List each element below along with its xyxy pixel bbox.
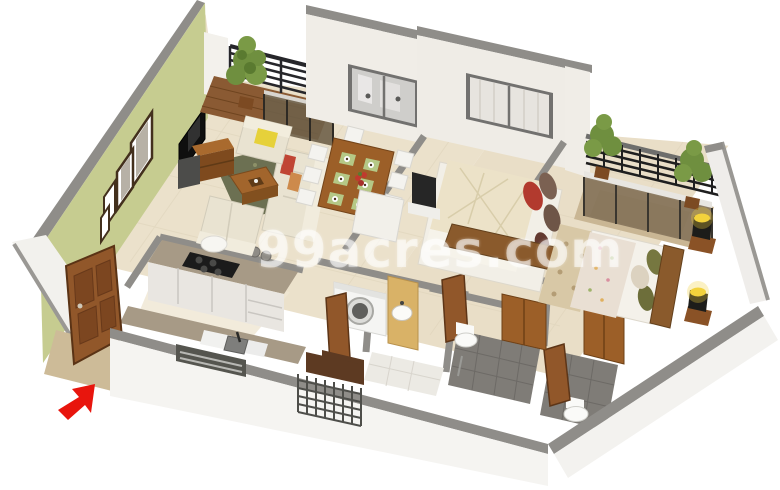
- dining-partition-cabinet: [352, 190, 404, 242]
- wash-basin-counter: [388, 276, 418, 350]
- door-handle: [78, 304, 83, 309]
- master-wardrobe: [502, 294, 546, 350]
- bedroom-tv-unit: [408, 172, 440, 220]
- side-table: [201, 236, 227, 252]
- render-canvas: [0, 0, 780, 490]
- floorplan-3d-render: 99acres.com: [0, 0, 780, 490]
- kitchen-jar: [261, 251, 271, 261]
